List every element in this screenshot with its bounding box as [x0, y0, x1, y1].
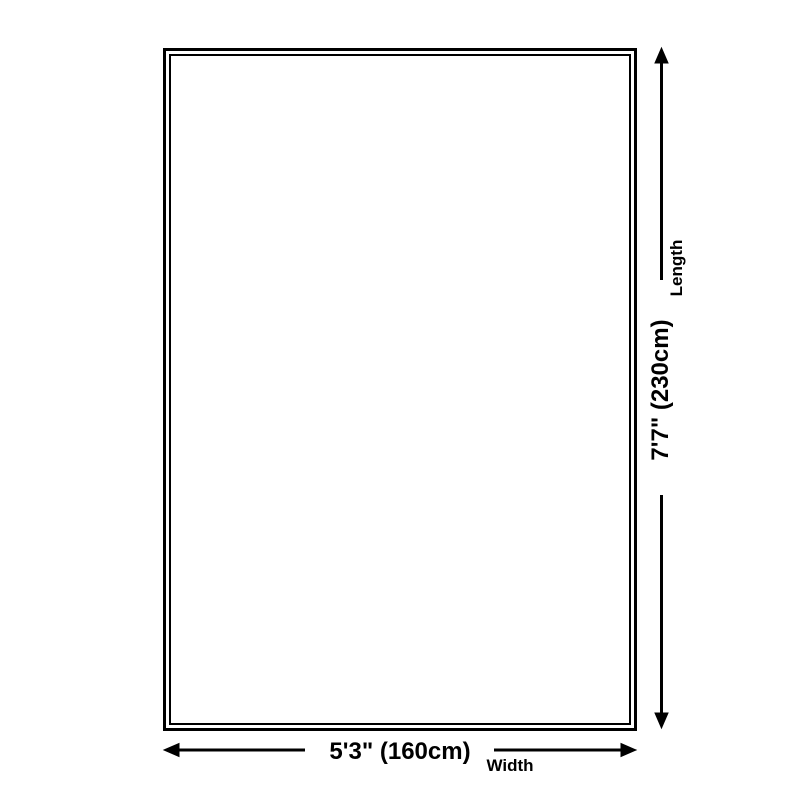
length-arrow-up-head — [655, 48, 668, 63]
width-arrow-left-head — [164, 744, 179, 757]
product-outline-outer — [163, 48, 637, 731]
width-dimension-label: Width — [486, 756, 533, 776]
length-arrow-down-head — [655, 713, 668, 728]
dimension-diagram: 5'3" (160cm) Width 7'7" (230cm) Length — [0, 0, 800, 800]
width-dimension-value: 5'3" (160cm) — [329, 738, 470, 766]
length-dimension-value: 7'7" (230cm) — [647, 319, 675, 460]
length-dimension-label: Length — [667, 240, 687, 297]
width-arrow-right-head — [621, 744, 636, 757]
product-outline-inner — [169, 54, 631, 725]
